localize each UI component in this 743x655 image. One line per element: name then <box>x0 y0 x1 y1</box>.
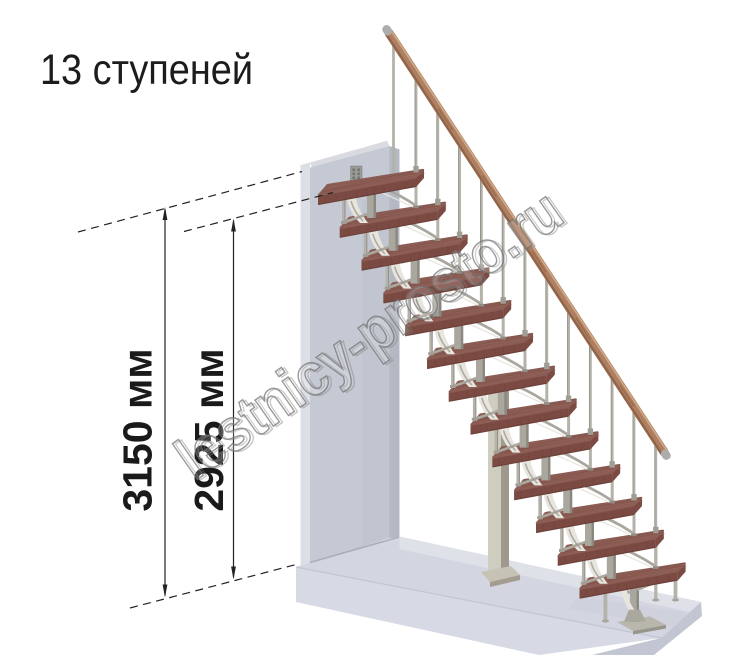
svg-text:13 ступеней: 13 ступеней <box>40 46 253 94</box>
svg-text:3150 мм: 3150 мм <box>114 348 160 511</box>
